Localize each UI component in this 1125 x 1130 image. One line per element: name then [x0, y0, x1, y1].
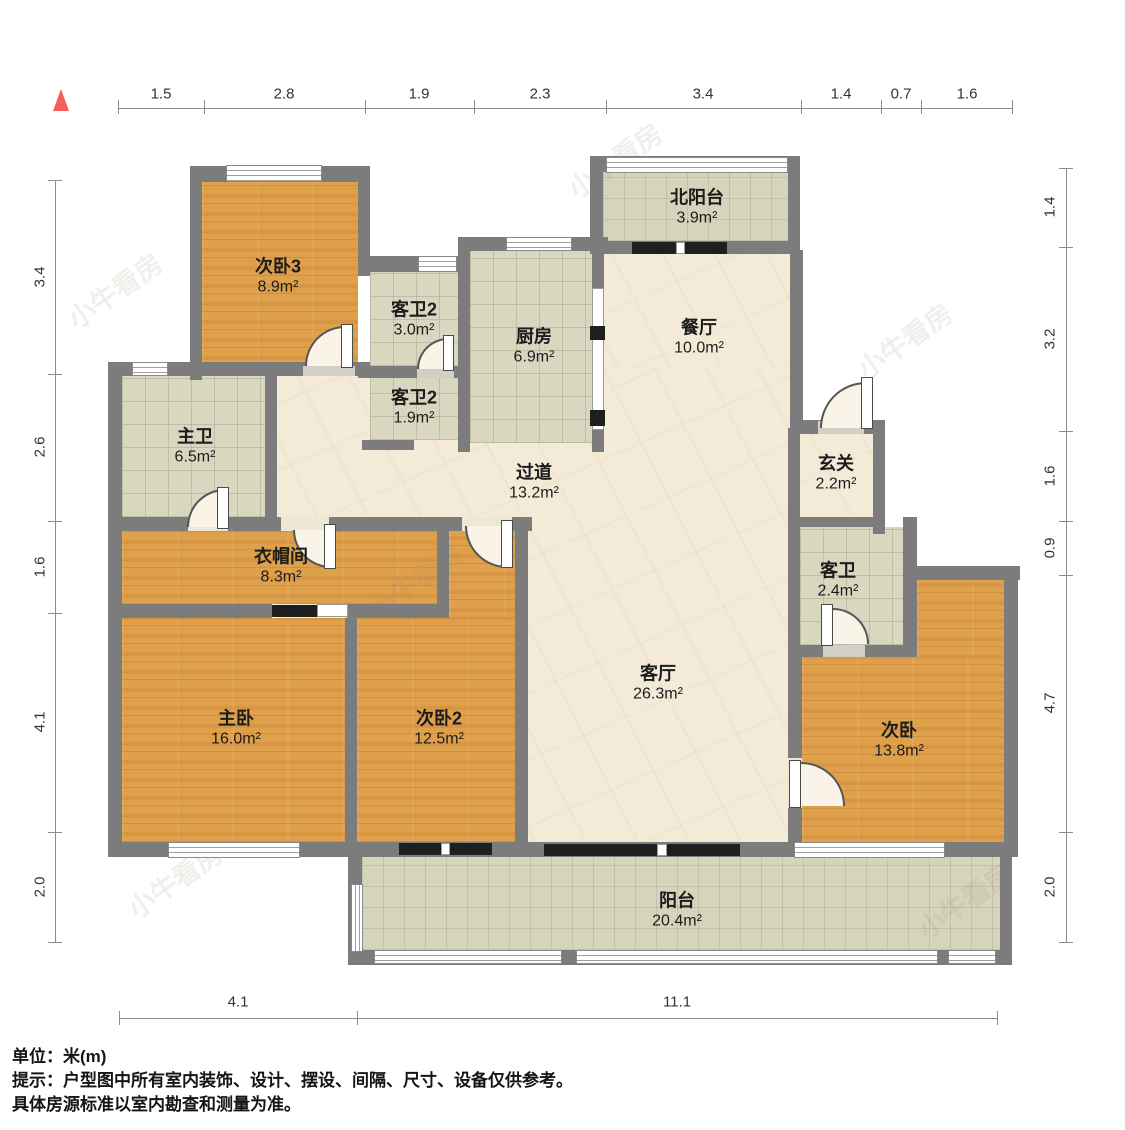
dim-line-right: [1066, 168, 1067, 942]
wall: [788, 156, 800, 252]
dim-tick: [1059, 575, 1073, 576]
dim-tick: [119, 1011, 120, 1025]
wall: [873, 428, 885, 534]
dim-value: 1.4: [831, 86, 852, 103]
dim-tick: [881, 100, 882, 114]
window-master-bedroom: [168, 842, 300, 858]
room-name: 主卧: [211, 709, 261, 730]
dim-line-bottom: [119, 1018, 998, 1019]
room-area: 10.0m²: [674, 339, 724, 359]
dim-tick: [921, 100, 922, 114]
wall: [1004, 566, 1018, 857]
room-area: 20.4m²: [652, 912, 702, 932]
door-leaf-masterbath: [217, 487, 229, 529]
watermark: 小牛看房: [849, 293, 960, 387]
room-label-guestbath2a: 客卫2 3.0m²: [391, 300, 437, 341]
dim-line-left: [55, 180, 56, 942]
room-name: 玄关: [816, 454, 857, 475]
wall: [345, 618, 357, 844]
wall: [228, 517, 281, 531]
dim-value: 3.4: [693, 86, 714, 103]
dim-tick: [1059, 521, 1073, 522]
door-opening: [281, 517, 329, 531]
room-label-entry: 玄关 2.2m²: [816, 454, 857, 495]
room-label-bedroom2: 次卧2 12.5m²: [414, 709, 464, 750]
footer-note2: 具体房源标准以室内勘查和测量为准。: [12, 1090, 301, 1115]
room-name: 过道: [509, 463, 559, 484]
window-balcony-rail: [374, 950, 562, 964]
dim-value: 0.7: [891, 86, 912, 103]
watermark: 小牛看房: [59, 243, 170, 337]
wall: [788, 645, 823, 657]
room-area: 2.2m²: [816, 475, 857, 495]
door-leaf-bedroom2: [501, 520, 513, 568]
dim-tick: [48, 613, 62, 614]
slider-living-balcony: [544, 844, 740, 856]
room-name: 客厅: [633, 664, 683, 685]
room-name: 客卫: [818, 561, 859, 582]
opening-master-closet: [272, 605, 317, 617]
room-area: 13.2m²: [509, 484, 559, 504]
dim-tick: [1059, 247, 1073, 248]
room-area: 1.9m²: [391, 409, 437, 429]
dim-tick: [474, 100, 475, 114]
dim-tick: [1059, 431, 1073, 432]
room-area: 3.0m²: [391, 321, 437, 341]
room-area: 13.8m²: [874, 742, 924, 762]
dim-value: 1.9: [409, 86, 430, 103]
door-leaf-bedroom3: [341, 324, 353, 368]
wall: [788, 657, 802, 758]
window-balcony-rail: [576, 950, 938, 964]
dim-tick: [48, 180, 62, 181]
room-name: 次卧: [874, 721, 924, 742]
wall: [592, 250, 604, 290]
door-leaf-closet: [324, 524, 336, 569]
room-label-masterbath: 主卫 6.5m²: [175, 427, 216, 468]
dim-value: 3.4: [32, 267, 49, 288]
window-north-balcony: [606, 157, 788, 173]
dim-tick: [48, 942, 62, 943]
floorplan-canvas: 小牛看房 小牛看房 小牛看房 小牛看房 小牛看房 小牛看房: [0, 0, 1125, 1130]
wall: [108, 604, 272, 618]
room-label-south-balcony: 阳台 20.4m²: [652, 891, 702, 932]
room-area: 2.4m²: [818, 582, 859, 602]
kitchen-door-panel: [590, 410, 605, 426]
room-name: 主卫: [175, 427, 216, 448]
slider-gap: [676, 242, 685, 254]
dim-tick: [204, 100, 205, 114]
wall: [329, 517, 462, 531]
wall: [362, 440, 414, 450]
room-label-closet: 衣帽间 8.3m²: [254, 547, 308, 588]
dim-tick: [48, 832, 62, 833]
room-area: 6.9m²: [514, 348, 555, 368]
wall: [458, 237, 470, 452]
kitchen-door-panel: [590, 326, 605, 340]
room-label-living: 客厅 26.3m²: [633, 664, 683, 705]
window-bedroom3: [226, 165, 322, 182]
wall: [515, 517, 528, 857]
room-area: 8.3m²: [254, 568, 308, 588]
dim-value: 4.1: [32, 712, 49, 733]
room-name: 北阳台: [670, 188, 724, 209]
room-label-guestbath: 客卫 2.4m²: [818, 561, 859, 602]
door-arc-entry: [820, 382, 866, 428]
wall: [865, 645, 917, 657]
dim-value: 2.0: [1042, 877, 1059, 898]
room-label-bedroom3: 次卧3 8.9m²: [255, 257, 301, 298]
room-area: 16.0m²: [211, 730, 261, 750]
room-name: 餐厅: [674, 318, 724, 339]
dim-tick: [801, 100, 802, 114]
dim-value: 11.1: [663, 994, 691, 1011]
room-label-guestbath2b: 客卫2 1.9m²: [391, 388, 437, 429]
window-bedroom-east: [794, 842, 945, 858]
dim-value: 1.5: [151, 86, 172, 103]
wall: [800, 517, 873, 527]
window-masterbath: [132, 362, 168, 376]
room-area: 26.3m²: [633, 685, 683, 705]
north-arrow-icon: [53, 89, 69, 111]
dim-tick: [48, 521, 62, 522]
room-name: 厨房: [514, 327, 555, 348]
dim-value: 4.7: [1042, 693, 1059, 714]
room-label-bedroom-east: 次卧 13.8m²: [874, 721, 924, 762]
dim-value: 1.6: [957, 86, 978, 103]
wall: [1000, 850, 1012, 965]
window-balcony-rail: [948, 950, 996, 964]
dim-line-top: [118, 108, 1013, 109]
door-leaf-guestbath: [821, 604, 833, 646]
footer-unit: 单位：米(m): [12, 1042, 106, 1067]
dim-value: 1.6: [32, 557, 49, 578]
dim-tick: [1059, 168, 1073, 169]
wall: [592, 428, 604, 452]
dim-tick: [1059, 832, 1073, 833]
room-name: 衣帽间: [254, 547, 308, 568]
dim-value: 0.9: [1042, 538, 1059, 559]
room-name: 阳台: [652, 891, 702, 912]
dim-tick: [357, 1011, 358, 1025]
room-label-master-bedroom: 主卧 16.0m²: [211, 709, 261, 750]
dim-value: 1.4: [1042, 197, 1059, 218]
dim-tick: [118, 100, 119, 114]
slider-gap: [441, 843, 450, 855]
dim-tick: [48, 374, 62, 375]
room-area: 8.9m²: [255, 278, 301, 298]
footer-note1: 提示：户型图中所有室内装饰、设计、摆设、间隔、尺寸、设备仅供参考。: [12, 1066, 573, 1091]
dim-value: 4.1: [228, 994, 249, 1011]
dim-value: 1.6: [1042, 466, 1059, 487]
room-label-north-balcony: 北阳台 3.9m²: [670, 188, 724, 229]
dim-tick: [1012, 100, 1013, 114]
wall: [903, 517, 917, 657]
room-name: 客卫2: [391, 388, 437, 409]
door-leaf-guestbath2: [443, 335, 454, 371]
opening-master-closet-panel: [317, 604, 348, 617]
window-kitchen: [506, 237, 572, 251]
wall: [437, 531, 449, 615]
slider-gap: [657, 844, 667, 856]
room-area: 12.5m²: [414, 730, 464, 750]
dim-value: 3.2: [1042, 329, 1059, 350]
door-leaf-bedroom-east: [789, 760, 801, 808]
room-area: 6.5m²: [175, 448, 216, 468]
dim-value: 2.8: [274, 86, 295, 103]
wall: [903, 566, 1020, 580]
wall: [347, 604, 449, 618]
wall: [190, 166, 202, 380]
window-guestbath2: [418, 256, 457, 272]
room-name: 次卧2: [414, 709, 464, 730]
door-leaf-entry: [861, 377, 873, 429]
dim-tick: [365, 100, 366, 114]
room-label-hallway: 过道 13.2m²: [509, 463, 559, 504]
room-label-kitchen: 厨房 6.9m²: [514, 327, 555, 368]
dim-value: 2.0: [32, 877, 49, 898]
wall: [790, 250, 803, 422]
dim-tick: [606, 100, 607, 114]
door-threshold: [823, 645, 865, 657]
window-balcony-west: [351, 884, 363, 952]
dim-tick: [1059, 942, 1073, 943]
room-label-dining: 餐厅 10.0m²: [674, 318, 724, 359]
wall: [265, 376, 277, 531]
wall: [788, 428, 800, 657]
dim-value: 2.6: [32, 437, 49, 458]
room-area: 3.9m²: [670, 209, 724, 229]
wall: [108, 517, 188, 531]
dim-tick: [997, 1011, 998, 1025]
room-name: 次卧3: [255, 257, 301, 278]
kitchen-door-opening: [592, 288, 604, 430]
dim-value: 2.3: [530, 86, 551, 103]
room-name: 客卫2: [391, 300, 437, 321]
